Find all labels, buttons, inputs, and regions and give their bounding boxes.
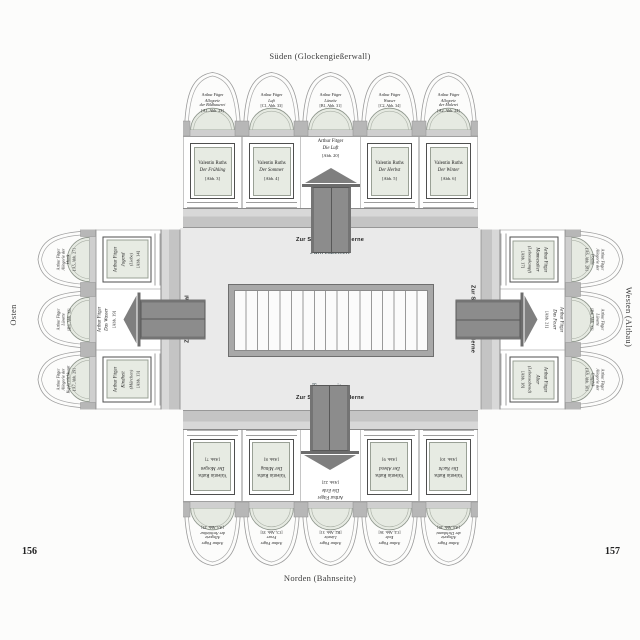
door-pediment xyxy=(305,455,357,470)
title: Die Erde xyxy=(322,487,339,493)
east-panel-bay-0: Arthur FitgerJugend(Liebe)[Abb. 14] xyxy=(96,229,160,289)
south-panel-bay-0: Valentin RuthsDer Frühling[Abb. 3] xyxy=(183,137,242,208)
figure-ref: [C2, Abb. 34] xyxy=(379,104,401,109)
panel-frame: Valentin RuthsDer Mittag[Abb. 8] xyxy=(253,443,291,492)
panel-plinth xyxy=(364,430,415,436)
south-panel-1: Valentin RuthsDer Sommer[Abb. 4] xyxy=(249,143,294,199)
north-panel-bay-1: Valentin RuthsDer Mittag[Abb. 8] xyxy=(242,430,301,501)
east-panel-0: Arthur FitgerJugend(Liebe)[Abb. 14] xyxy=(102,236,151,282)
west-lunette-label-0: Arthur FitgerAllegorie der Poesie[A6, Ab… xyxy=(583,233,604,285)
north-lunette-label-0: Arthur FitgerAllegorie der Architektur[A… xyxy=(187,524,238,545)
title: Allegorie der Architektur xyxy=(200,530,225,540)
title: Allegorie der Bildhauerei xyxy=(200,99,226,109)
door-center-line xyxy=(331,188,332,252)
lunette-row-north: Arthur FitgerAllegorie der Dichtkunst[A4… xyxy=(183,502,478,568)
south-lunette-label-3: Arthur FitgerWasser[C2, Abb. 34] xyxy=(364,93,415,109)
west-lunette-label-1: Arthur FitgerLünette[B4, Abb. 32] xyxy=(588,293,604,345)
artist: Arthur Fitger xyxy=(318,139,343,145)
west-lunette-1: Arthur FitgerLünette[B4, Abb. 32] xyxy=(565,289,625,349)
north-lunette-0: Arthur FitgerAllegorie der Architektur[A… xyxy=(183,502,242,568)
book-spread: Süden (Glockengießerwall) Norden (Bahnse… xyxy=(0,0,640,640)
panel-frame: Arthur FitgerAlter(Lebensabend)[Abb. 18] xyxy=(512,360,554,399)
subtitle: (Lebensabend) xyxy=(527,365,533,392)
door-leaf-panel xyxy=(140,299,205,339)
panel-frame: Valentin RuthsDer Sommer[Abb. 4] xyxy=(253,147,291,196)
title: Der Sommer xyxy=(259,168,283,174)
title: Lünette xyxy=(324,535,336,540)
panel-plinth xyxy=(500,353,506,405)
west-lunette-2: Arthur FitgerAllegorie der Graphik[A8, A… xyxy=(565,349,625,409)
title: Das Wasser xyxy=(104,308,110,331)
panel-plinth xyxy=(423,202,474,208)
south-lunette-label-1: Arthur FitgerLuft[C1, Abb. 33] xyxy=(246,93,297,109)
title: Der Abend xyxy=(379,464,400,470)
door-center-line xyxy=(141,318,204,319)
south-panel-bay-4: Valentin RuthsDer Winter[Abb. 6] xyxy=(419,137,478,208)
subtitle: (Lebenskampf) xyxy=(527,245,533,272)
artist: Arthur Fitger xyxy=(557,306,563,331)
artist: Arthur Fitger xyxy=(318,493,343,499)
artist: Arthur Fitger xyxy=(541,366,547,391)
artist: Valentin Ruths xyxy=(375,161,403,167)
label-east-wall: Osten xyxy=(8,304,18,325)
title: Allegorie der Graphik xyxy=(589,368,599,390)
north-panel-bay-4: Valentin RuthsDie Nacht[Abb. 10] xyxy=(419,430,478,501)
east-lunette-label-0: Arthur FitgerAllegorie der Musik[A5, Abb… xyxy=(56,233,77,285)
artist: Valentin Ruths xyxy=(434,471,462,477)
south-lunette-2: Arthur FitgerLünette[B1, Abb. 31] xyxy=(301,70,360,136)
east-door-bay: Arthur FitgerDas Wasser[Abb. 19] xyxy=(96,289,160,349)
title: Allegorie der Malerei xyxy=(439,99,458,109)
panel-frame: Valentin RuthsDer Herbst[Abb. 5] xyxy=(371,147,409,196)
north-lunette-label-1: Arthur FitgerFeuer[C3, Abb. 35] xyxy=(246,529,297,545)
title: Feuer xyxy=(267,535,277,540)
title: Allegorie der Kupferstichkunst xyxy=(61,365,71,393)
door-leaf-panel xyxy=(311,187,351,253)
figure-ref: [B1, Abb. 31] xyxy=(320,104,342,109)
south-lunette-1: Arthur FitgerLuft[C1, Abb. 33] xyxy=(242,70,301,136)
panel-strip-east: Arthur FitgerKindheit(Märchen)[Abb. 13]A… xyxy=(95,229,160,409)
artist: Valentin Ruths xyxy=(198,161,226,167)
door-pediment xyxy=(123,295,136,343)
label-south-wall: Süden (Glockengießerwall) xyxy=(269,51,370,61)
north-panel-bay-3: Valentin RuthsDer Abend[Abb. 9] xyxy=(360,430,419,501)
panel-frame: Valentin RuthsDer Morgen[Abb. 7] xyxy=(194,443,232,492)
figure-ref: [A3, Abb. 25] xyxy=(201,524,223,529)
east-lunette-1: Arthur FitgerLünette[B3, Abb. 32] xyxy=(35,289,95,349)
figure-ref: [Abb. 7] xyxy=(205,457,220,462)
figure-ref: [Abb. 14] xyxy=(135,250,140,267)
panel-frame: Valentin RuthsDer Winter[Abb. 6] xyxy=(430,147,468,196)
artist: Valentin Ruths xyxy=(375,471,403,477)
wall-east: Arthur FitgerAllegorie der Kupferstichku… xyxy=(35,229,180,409)
south-lunette-label-2: Arthur FitgerLünette[B1, Abb. 31] xyxy=(305,93,356,109)
figure-ref: [Abb. 4] xyxy=(264,176,279,181)
figure-ref: [Abb. 3] xyxy=(205,176,220,181)
west-panel-bay-2: Arthur FitgerAlter(Lebensabend)[Abb. 18] xyxy=(500,349,564,409)
artist: Valentin Ruths xyxy=(257,161,285,167)
figure-ref: [Abb. 8] xyxy=(264,457,279,462)
north-door-label: Arthur FitgerDie Erde[Abb. 22] xyxy=(303,480,358,499)
east-panel-bay-2: Arthur FitgerKindheit(Märchen)[Abb. 13] xyxy=(96,349,160,409)
south-lunette-label-0: Arthur FitgerAllegorie der Bildhauerei[A… xyxy=(187,93,238,114)
title: Die Luft xyxy=(323,146,339,152)
title: Die Nacht xyxy=(439,464,459,470)
figure-ref: [Abb. 9] xyxy=(382,457,397,462)
staircase xyxy=(228,284,434,357)
figure-ref: [A2, Abb. 24] xyxy=(437,109,459,114)
artist: Arthur Fitger xyxy=(320,540,342,545)
artist: Arthur Fitger xyxy=(541,246,547,271)
artist: Arthur Fitger xyxy=(202,540,224,545)
page-number-right: 157 xyxy=(605,546,620,557)
panel-plinth xyxy=(246,202,297,208)
door-pediment xyxy=(305,168,357,183)
stair-hall-floor: Zur Sammlung Moderne Jahreszeiten Tagesz… xyxy=(180,228,480,410)
east-lunette-2: Arthur FitgerAllegorie der Kupferstichku… xyxy=(35,349,95,409)
label-west-wall: Westen (Altbau) xyxy=(624,287,634,347)
panel-plinth xyxy=(500,233,506,285)
door-pediment xyxy=(524,295,537,343)
south-panel-0: Valentin RuthsDer Frühling[Abb. 3] xyxy=(190,143,235,199)
artist: Valentin Ruths xyxy=(257,471,285,477)
north-door-bay: Arthur FitgerDie Erde[Abb. 22] xyxy=(301,430,360,501)
figure-ref: [B2, Abb. 31] xyxy=(320,529,342,534)
south-lunette-0: Arthur FitgerAllegorie der Bildhauerei[A… xyxy=(183,70,242,136)
south-door-label: Arthur FitgerDie Luft[Abb. 20] xyxy=(303,139,358,158)
west-door-label: Arthur FitgerDas Feuer[Abb. 21] xyxy=(544,291,563,347)
south-door-bay: Arthur FitgerDie Luft[Abb. 20] xyxy=(301,137,360,208)
figure-ref: [A5, Abb. 27] xyxy=(72,248,77,270)
subtitle: (Märchen) xyxy=(128,369,134,388)
figure-ref: [C3, Abb. 35] xyxy=(261,529,283,534)
artist: Arthur Fitger xyxy=(438,540,460,545)
figure-ref: [C4, Abb. 36] xyxy=(379,529,401,534)
artist: Arthur Fitger xyxy=(97,306,103,331)
figure-ref: [A6, Abb. 28] xyxy=(583,248,588,270)
lunette-row-west: Arthur FitgerAllegorie der Poesie[A6, Ab… xyxy=(565,229,625,409)
east-panel-2: Arthur FitgerKindheit(Märchen)[Abb. 13] xyxy=(102,356,151,402)
east-lunette-0: Arthur FitgerAllegorie der Musik[A5, Abb… xyxy=(35,229,95,289)
figure-ref: [Abb. 18] xyxy=(520,370,525,387)
figure-ref: [B4, Abb. 32] xyxy=(588,308,593,330)
north-panel-1: Valentin RuthsDer Mittag[Abb. 8] xyxy=(249,439,294,495)
door-leaf-panel xyxy=(311,385,351,451)
title: Das Feuer xyxy=(551,309,557,329)
title: Allegorie der Poesie xyxy=(589,248,599,270)
panel-plinth xyxy=(364,202,415,208)
staircase-steps xyxy=(234,290,428,351)
east-door-label: Arthur FitgerDas Wasser[Abb. 19] xyxy=(97,291,116,347)
title: Der Herbst xyxy=(379,168,401,174)
north-lunette-1: Arthur FitgerFeuer[C3, Abb. 35] xyxy=(242,502,301,568)
door-center-line xyxy=(330,386,331,450)
west-lunette-0: Arthur FitgerAllegorie der Poesie[A6, Ab… xyxy=(565,229,625,289)
panel-frame: Valentin RuthsDer Frühling[Abb. 3] xyxy=(194,147,232,196)
figure-ref: [Abb. 5] xyxy=(382,176,397,181)
north-lunette-label-4: Arthur FitgerAllegorie der Dichtkunst[A4… xyxy=(423,524,474,545)
north-lunette-label-2: Arthur FitgerLünette[B2, Abb. 31] xyxy=(305,529,356,545)
figure-ref: [Abb. 22] xyxy=(322,480,339,485)
title: Der Winter xyxy=(438,168,459,174)
artist: Arthur Fitger xyxy=(261,540,283,545)
west-panel-bay-0: Arthur FitgerMannesalter(Lebenskampf)[Ab… xyxy=(500,229,564,289)
title: Kindheit xyxy=(121,371,127,388)
panel-plinth xyxy=(154,353,160,405)
panel-frame: Arthur FitgerMannesalter(Lebenskampf)[Ab… xyxy=(512,240,554,279)
panel-frame: Arthur FitgerKindheit(Märchen)[Abb. 13] xyxy=(106,360,148,399)
panel-frame: Valentin RuthsDer Abend[Abb. 9] xyxy=(371,443,409,492)
north-lunette-4: Arthur FitgerAllegorie der Dichtkunst[A4… xyxy=(419,502,478,568)
figure-ref: [Abb. 10] xyxy=(440,457,457,462)
east-lunette-label-2: Arthur FitgerAllegorie der Kupferstichku… xyxy=(56,353,77,405)
lunette-row-south: Arthur FitgerAllegorie der Bildhauerei[A… xyxy=(183,70,478,136)
south-lunette-3: Arthur FitgerWasser[C2, Abb. 34] xyxy=(360,70,419,136)
south-lunette-4: Arthur FitgerAllegorie der Malerei[A2, A… xyxy=(419,70,478,136)
lunette-row-east: Arthur FitgerAllegorie der Kupferstichku… xyxy=(35,229,95,409)
figure-ref: [A1, Abb. 23] xyxy=(201,109,223,114)
panel-frame: Valentin RuthsDie Nacht[Abb. 10] xyxy=(430,443,468,492)
north-panel-4: Valentin RuthsDie Nacht[Abb. 10] xyxy=(426,439,471,495)
figure-ref: [Abb. 20] xyxy=(322,153,339,158)
door-center-line xyxy=(456,319,519,320)
title: Mannesalter xyxy=(534,247,540,271)
subtitle: (Liebe) xyxy=(128,252,134,265)
title: Jugend xyxy=(121,252,127,266)
wall-west: Arthur FitgerAllegorie der Poesie[A6, Ab… xyxy=(480,229,625,409)
panel-strip-south: Valentin RuthsDer Frühling[Abb. 3]Valent… xyxy=(183,136,478,208)
panel-frame: Arthur FitgerJugend(Liebe)[Abb. 14] xyxy=(106,240,148,279)
north-lunette-label-3: Arthur FitgerErde[C4, Abb. 36] xyxy=(364,529,415,545)
artist: Valentin Ruths xyxy=(198,471,226,477)
artist: Valentin Ruths xyxy=(434,161,462,167)
figure-ref: [Abb. 17] xyxy=(520,250,525,267)
panel-strip-north: Valentin RuthsDie Nacht[Abb. 10]Valentin… xyxy=(183,430,478,502)
artist: Arthur Fitger xyxy=(113,366,119,391)
panel-plinth xyxy=(154,233,160,285)
figure-ref: [Abb. 13] xyxy=(135,370,140,387)
panel-plinth xyxy=(246,430,297,436)
figure-ref: [A7, Abb. 29] xyxy=(72,368,77,390)
figure-ref: [C1, Abb. 33] xyxy=(261,104,283,109)
north-panel-0: Valentin RuthsDer Morgen[Abb. 7] xyxy=(190,439,235,495)
south-lunette-label-4: Arthur FitgerAllegorie der Malerei[A2, A… xyxy=(423,93,474,114)
wall-south: Arthur FitgerAllegorie der Bildhauerei[A… xyxy=(183,70,478,228)
artist: Arthur Fitger xyxy=(379,540,401,545)
south-panel-bay-1: Valentin RuthsDer Sommer[Abb. 4] xyxy=(242,137,301,208)
figure-ref: [Abb. 19] xyxy=(111,310,116,327)
figure-ref: [A8, Abb. 30] xyxy=(583,368,588,390)
label-north-wall: Norden (Bahnseite) xyxy=(284,573,356,583)
wall-north: Arthur FitgerAllegorie der Dichtkunst[A4… xyxy=(183,410,478,568)
south-panel-bay-3: Valentin RuthsDer Herbst[Abb. 5] xyxy=(360,137,419,208)
door-lintel xyxy=(302,451,360,454)
west-panel-0: Arthur FitgerMannesalter(Lebenskampf)[Ab… xyxy=(509,236,558,282)
title: Erde xyxy=(386,535,394,540)
figure-ref: [B3, Abb. 32] xyxy=(67,308,72,330)
page-number-left: 156 xyxy=(22,546,37,557)
south-panel-4: Valentin RuthsDer Winter[Abb. 6] xyxy=(426,143,471,199)
figure-ref: [Abb. 6] xyxy=(441,176,456,181)
west-door-bay: Arthur FitgerDas Feuer[Abb. 21] xyxy=(500,289,564,349)
panel-strip-west: Arthur FitgerMannesalter(Lebenskampf)[Ab… xyxy=(500,229,565,409)
title: Allegorie der Musik xyxy=(61,248,71,270)
north-lunette-3: Arthur FitgerErde[C4, Abb. 36] xyxy=(360,502,419,568)
east-lunette-label-1: Arthur FitgerLünette[B3, Abb. 32] xyxy=(56,293,72,345)
figure-ref: [A4, Abb. 26] xyxy=(437,524,459,529)
artist: Arthur Fitger xyxy=(113,246,119,271)
south-panel-3: Valentin RuthsDer Herbst[Abb. 5] xyxy=(367,143,412,199)
north-panel-3: Valentin RuthsDer Abend[Abb. 9] xyxy=(367,439,412,495)
title: Alter xyxy=(534,374,540,384)
west-panel-2: Arthur FitgerAlter(Lebensabend)[Abb. 18] xyxy=(509,356,558,402)
title: Der Mittag xyxy=(261,464,282,470)
west-lunette-label-2: Arthur FitgerAllegorie der Graphik[A8, A… xyxy=(583,353,604,405)
panel-plinth xyxy=(423,430,474,436)
panel-plinth xyxy=(187,430,238,436)
title: Allegorie der Dichtkunst xyxy=(436,530,460,540)
north-lunette-2: Arthur FitgerLünette[B2, Abb. 31] xyxy=(301,502,360,568)
door-leaf-panel xyxy=(455,299,520,339)
panel-plinth xyxy=(187,202,238,208)
title: Der Morgen xyxy=(201,464,225,470)
north-panel-bay-0: Valentin RuthsDer Morgen[Abb. 7] xyxy=(183,430,242,501)
figure-ref: [Abb. 21] xyxy=(544,310,549,327)
title: Der Frühling xyxy=(200,168,226,174)
